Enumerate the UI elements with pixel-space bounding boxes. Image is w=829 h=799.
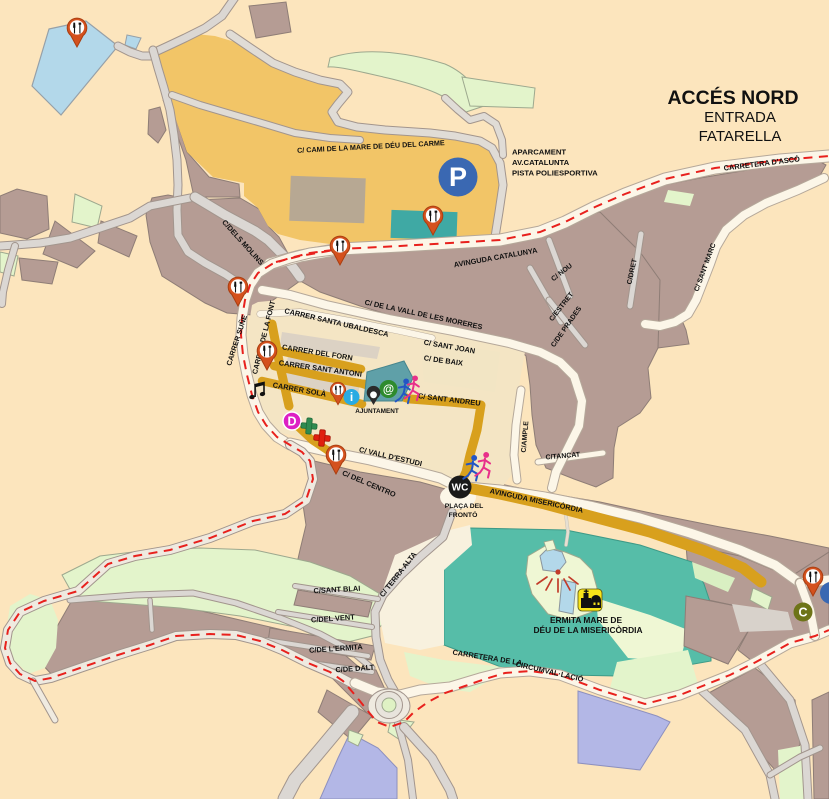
svg-text:DÉU DE LA MISERICÒRDIA: DÉU DE LA MISERICÒRDIA (533, 624, 642, 635)
svg-text:PLAÇA DEL: PLAÇA DEL (445, 503, 484, 510)
svg-text:@: @ (383, 384, 394, 396)
svg-text:ENTRADA: ENTRADA (704, 109, 776, 126)
svg-text:i: i (350, 390, 353, 404)
svg-text:ACCÉS NORD: ACCÉS NORD (667, 86, 798, 109)
svg-text:P: P (449, 162, 467, 192)
svg-text:PISTA POLIESPORTIVA: PISTA POLIESPORTIVA (512, 169, 598, 178)
svg-text:AJUNTAMENT: AJUNTAMENT (355, 408, 399, 415)
svg-text:AV.CATALUNTA: AV.CATALUNTA (512, 158, 570, 167)
svg-text:WC: WC (452, 483, 469, 494)
svg-text:C: C (798, 606, 807, 620)
svg-text:FRONTÓ: FRONTÓ (449, 510, 478, 519)
svg-text:ERMITA MARE DE: ERMITA MARE DE (550, 615, 623, 625)
svg-text:D: D (287, 415, 296, 429)
svg-text:APARCAMENT: APARCAMENT (512, 148, 566, 157)
svg-text:FATARELLA: FATARELLA (699, 128, 782, 145)
